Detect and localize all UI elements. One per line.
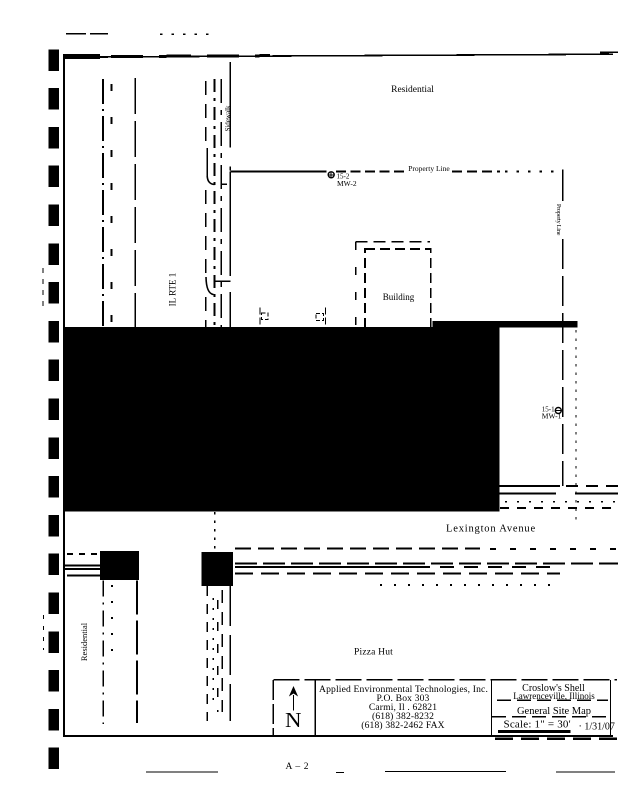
svg-text:MW-2: MW-2 xyxy=(337,179,357,188)
svg-text:Property Line: Property Line xyxy=(408,164,450,173)
svg-text:Lexington Avenue: Lexington Avenue xyxy=(446,524,536,535)
svg-text:(618) 382-2462 FAX: (618) 382-2462 FAX xyxy=(361,720,445,731)
svg-text:Sidewalk: Sidewalk xyxy=(224,105,232,132)
svg-text:Scale: 1" = 30': Scale: 1" = 30' xyxy=(504,719,571,731)
svg-text:Property Line: Property Line xyxy=(555,204,562,236)
svg-text:General Site Map: General Site Map xyxy=(517,706,591,717)
svg-text:N: N xyxy=(285,708,302,732)
svg-text:Lawrenceville, Illinois: Lawrenceville, Illinois xyxy=(513,691,595,701)
svg-text:MW-1: MW-1 xyxy=(542,412,562,421)
svg-text:· 1/31/07: · 1/31/07 xyxy=(579,722,615,733)
svg-text:Residential: Residential xyxy=(79,622,89,661)
svg-text:IL RTE 1: IL RTE 1 xyxy=(168,273,178,307)
svg-text:Pizza Hut: Pizza Hut xyxy=(354,648,393,658)
svg-text:Residential: Residential xyxy=(391,85,434,95)
svg-text:Building: Building xyxy=(383,292,415,302)
svg-text:A – 2: A – 2 xyxy=(286,762,310,772)
